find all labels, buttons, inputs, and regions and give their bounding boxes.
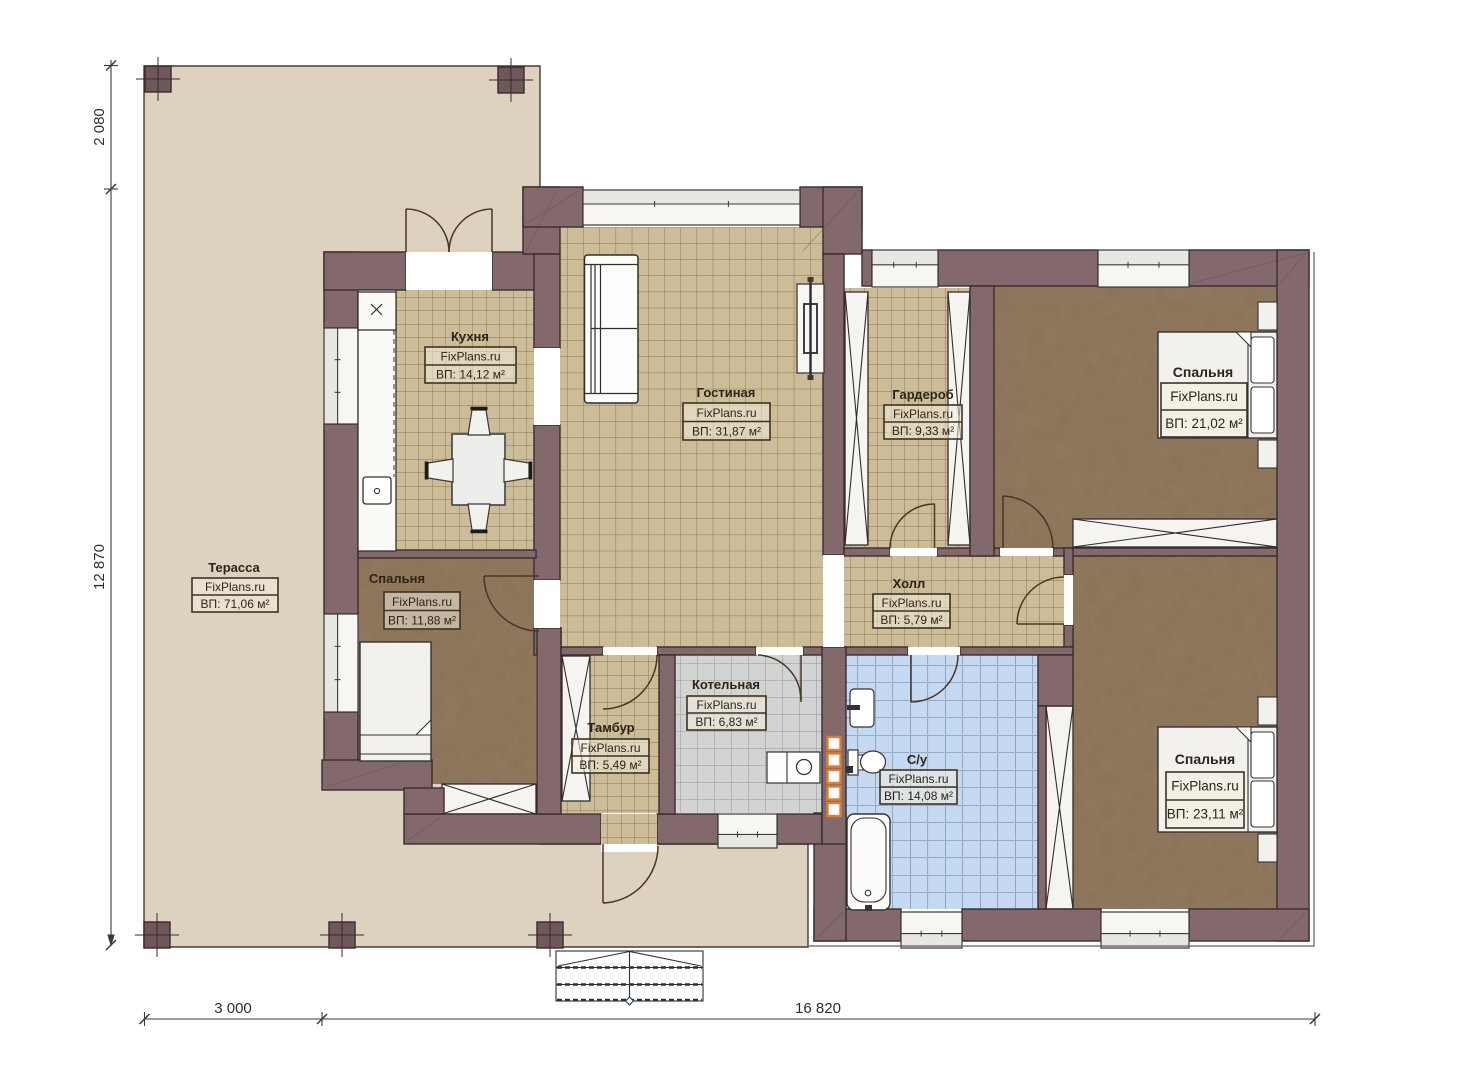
svg-text:FixPlans.ru: FixPlans.ru — [893, 407, 953, 421]
svg-text:ВП: 23,11 м²: ВП: 23,11 м² — [1167, 807, 1244, 822]
svg-text:12 870: 12 870 — [91, 544, 108, 590]
svg-text:FixPlans.ru: FixPlans.ru — [696, 698, 756, 712]
svg-text:Спальня: Спальня — [1175, 751, 1235, 767]
svg-text:FixPlans.ru: FixPlans.ru — [881, 596, 941, 610]
svg-text:Котельная: Котельная — [692, 677, 760, 692]
svg-text:FixPlans.ru: FixPlans.ru — [1170, 389, 1238, 404]
svg-text:ВП: 5,79 м²: ВП: 5,79 м² — [880, 613, 942, 627]
svg-text:ВП: 14,12 м²: ВП: 14,12 м² — [436, 368, 505, 382]
svg-text:ВП: 21,02 м²: ВП: 21,02 м² — [1165, 416, 1243, 431]
svg-text:Спальня: Спальня — [369, 571, 425, 586]
svg-text:ВП: 14,08 м²: ВП: 14,08 м² — [884, 789, 953, 803]
svg-text:ВП: 71,06 м²: ВП: 71,06 м² — [201, 597, 270, 611]
svg-text:С/у: С/у — [907, 752, 928, 767]
svg-text:ВП: 11,88 м²: ВП: 11,88 м² — [388, 613, 456, 627]
svg-text:ВП: 9,33 м²: ВП: 9,33 м² — [892, 424, 954, 438]
svg-text:FixPlans.ru: FixPlans.ru — [392, 595, 452, 609]
svg-text:Тамбур: Тамбур — [587, 720, 634, 735]
svg-text:3 000: 3 000 — [214, 1000, 252, 1017]
svg-text:Терасса: Терасса — [208, 560, 260, 575]
svg-text:Кухня: Кухня — [451, 329, 489, 344]
svg-text:FixPlans.ru: FixPlans.ru — [440, 350, 500, 364]
svg-text:FixPlans.ru: FixPlans.ru — [888, 772, 948, 786]
svg-text:Спальня: Спальня — [1173, 364, 1233, 380]
svg-text:ВП: 5,49 м²: ВП: 5,49 м² — [579, 758, 641, 772]
svg-text:ВП: 6,83 м²: ВП: 6,83 м² — [695, 715, 757, 729]
svg-text:FixPlans.ru: FixPlans.ru — [205, 580, 265, 594]
svg-text:FixPlans.ru: FixPlans.ru — [580, 741, 640, 755]
svg-text:Гостиная: Гостиная — [697, 385, 756, 400]
svg-text:FixPlans.ru: FixPlans.ru — [1171, 779, 1239, 794]
svg-text:ВП: 31,87 м²: ВП: 31,87 м² — [692, 424, 761, 438]
svg-text:2 080: 2 080 — [91, 108, 108, 146]
svg-text:FixPlans.ru: FixPlans.ru — [696, 406, 756, 420]
svg-text:Холл: Холл — [893, 576, 926, 591]
svg-text:16 820: 16 820 — [795, 1000, 841, 1017]
svg-text:Гардероб: Гардероб — [892, 387, 953, 402]
